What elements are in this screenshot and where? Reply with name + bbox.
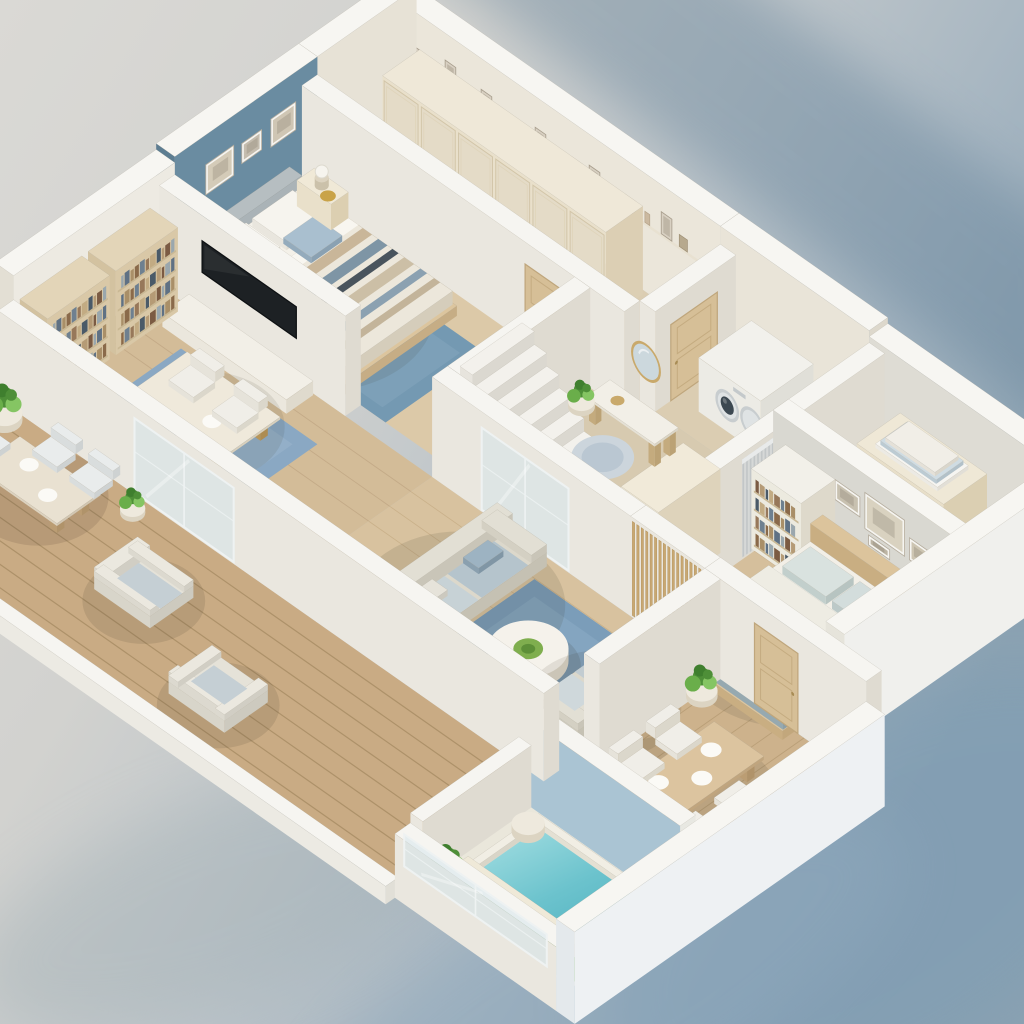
isometric-apartment-scene [0,0,1024,1024]
nightstand-lamp-shade [315,165,328,178]
floor-plan-render: Isometric 3D apartment floor plan render [0,0,1024,1024]
